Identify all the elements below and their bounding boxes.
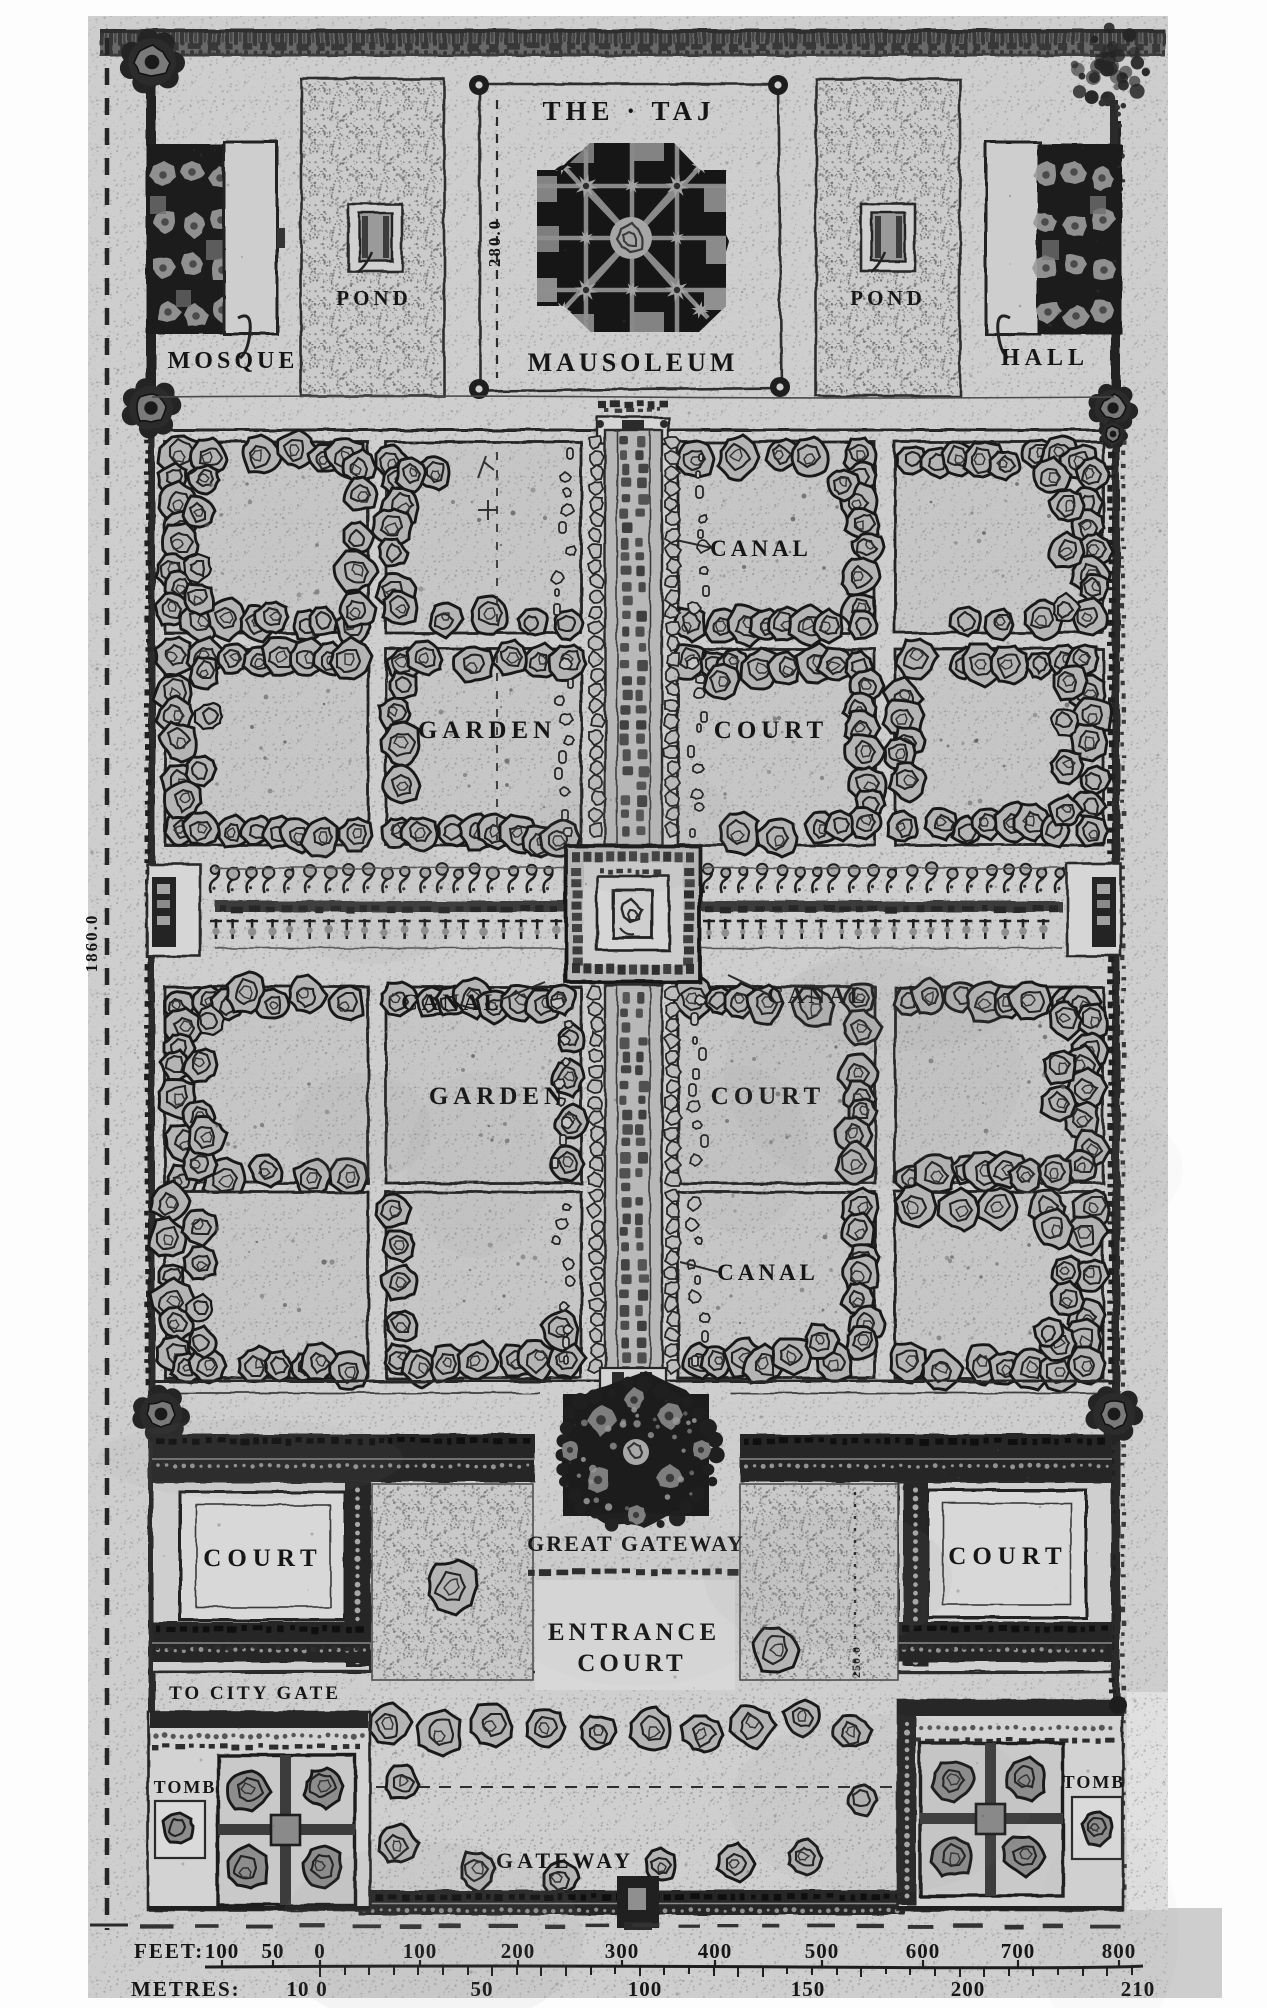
svg-text:TO CITY GATE: TO CITY GATE <box>169 1683 341 1704</box>
svg-text:MOSQUE: MOSQUE <box>168 348 299 374</box>
svg-text:200: 200 <box>951 1977 986 2001</box>
svg-text:500: 500 <box>805 1939 840 1963</box>
svg-text:MAUSOLEUM: MAUSOLEUM <box>528 348 739 377</box>
svg-text:600: 600 <box>906 1939 941 1963</box>
svg-text:POND: POND <box>336 286 412 310</box>
svg-text:TOMB: TOMB <box>154 1777 217 1797</box>
svg-text:100: 100 <box>628 1977 663 2001</box>
svg-text:FEET:: FEET: <box>134 1939 204 1963</box>
svg-text:150: 150 <box>791 1977 826 2001</box>
svg-text:COURT: COURT <box>714 717 828 744</box>
svg-text:700: 700 <box>1001 1939 1036 1963</box>
svg-text:TOMB: TOMB <box>1063 1772 1126 1792</box>
svg-text:280.0: 280.0 <box>485 219 504 267</box>
svg-text:CANAL: CANAL <box>401 990 503 1015</box>
svg-text:GARDEN: GARDEN <box>418 717 556 744</box>
svg-text:CANAL: CANAL <box>710 536 812 561</box>
svg-text:HALL: HALL <box>1001 345 1089 371</box>
svg-text:250.0: 250.0 <box>849 1646 863 1678</box>
svg-text:300: 300 <box>605 1939 640 1963</box>
svg-text:400: 400 <box>698 1939 733 1963</box>
svg-text:CANAL: CANAL <box>717 1260 819 1285</box>
svg-text:THE · TAJ: THE · TAJ <box>542 96 715 126</box>
svg-text:POND: POND <box>850 286 926 310</box>
svg-text:COURT: COURT <box>203 1545 322 1572</box>
svg-text:COURT: COURT <box>948 1543 1067 1570</box>
svg-text:METRES:: METRES: <box>131 1977 241 2001</box>
svg-text:1860.0: 1860.0 <box>82 914 101 973</box>
svg-text:100: 100 <box>205 1939 240 1963</box>
